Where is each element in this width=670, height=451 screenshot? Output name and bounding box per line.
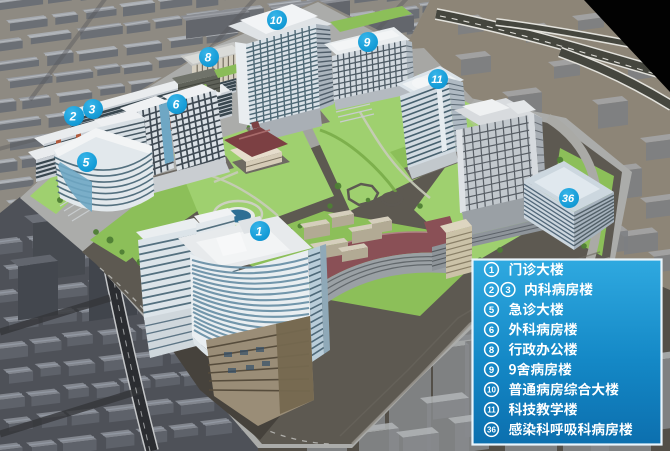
svg-text:10: 10 bbox=[487, 385, 496, 394]
svg-text:10: 10 bbox=[270, 15, 283, 27]
svg-text:1: 1 bbox=[489, 265, 495, 276]
svg-text:2: 2 bbox=[489, 285, 494, 296]
svg-text:36: 36 bbox=[562, 193, 575, 205]
svg-text:5: 5 bbox=[489, 305, 495, 316]
svg-text:11: 11 bbox=[431, 74, 442, 86]
svg-text:5: 5 bbox=[83, 155, 90, 169]
svg-text:36: 36 bbox=[487, 425, 496, 434]
svg-text:3: 3 bbox=[89, 102, 96, 116]
svg-text:2: 2 bbox=[69, 109, 77, 123]
svg-text:8: 8 bbox=[205, 50, 212, 64]
svg-text:8: 8 bbox=[489, 345, 494, 356]
svg-text:9: 9 bbox=[489, 365, 494, 376]
svg-text:3: 3 bbox=[505, 285, 510, 296]
svg-text:6: 6 bbox=[173, 97, 180, 111]
svg-text:1: 1 bbox=[256, 224, 263, 238]
svg-text:9: 9 bbox=[364, 35, 371, 49]
svg-text:6: 6 bbox=[489, 325, 494, 336]
svg-text:11: 11 bbox=[487, 405, 496, 414]
